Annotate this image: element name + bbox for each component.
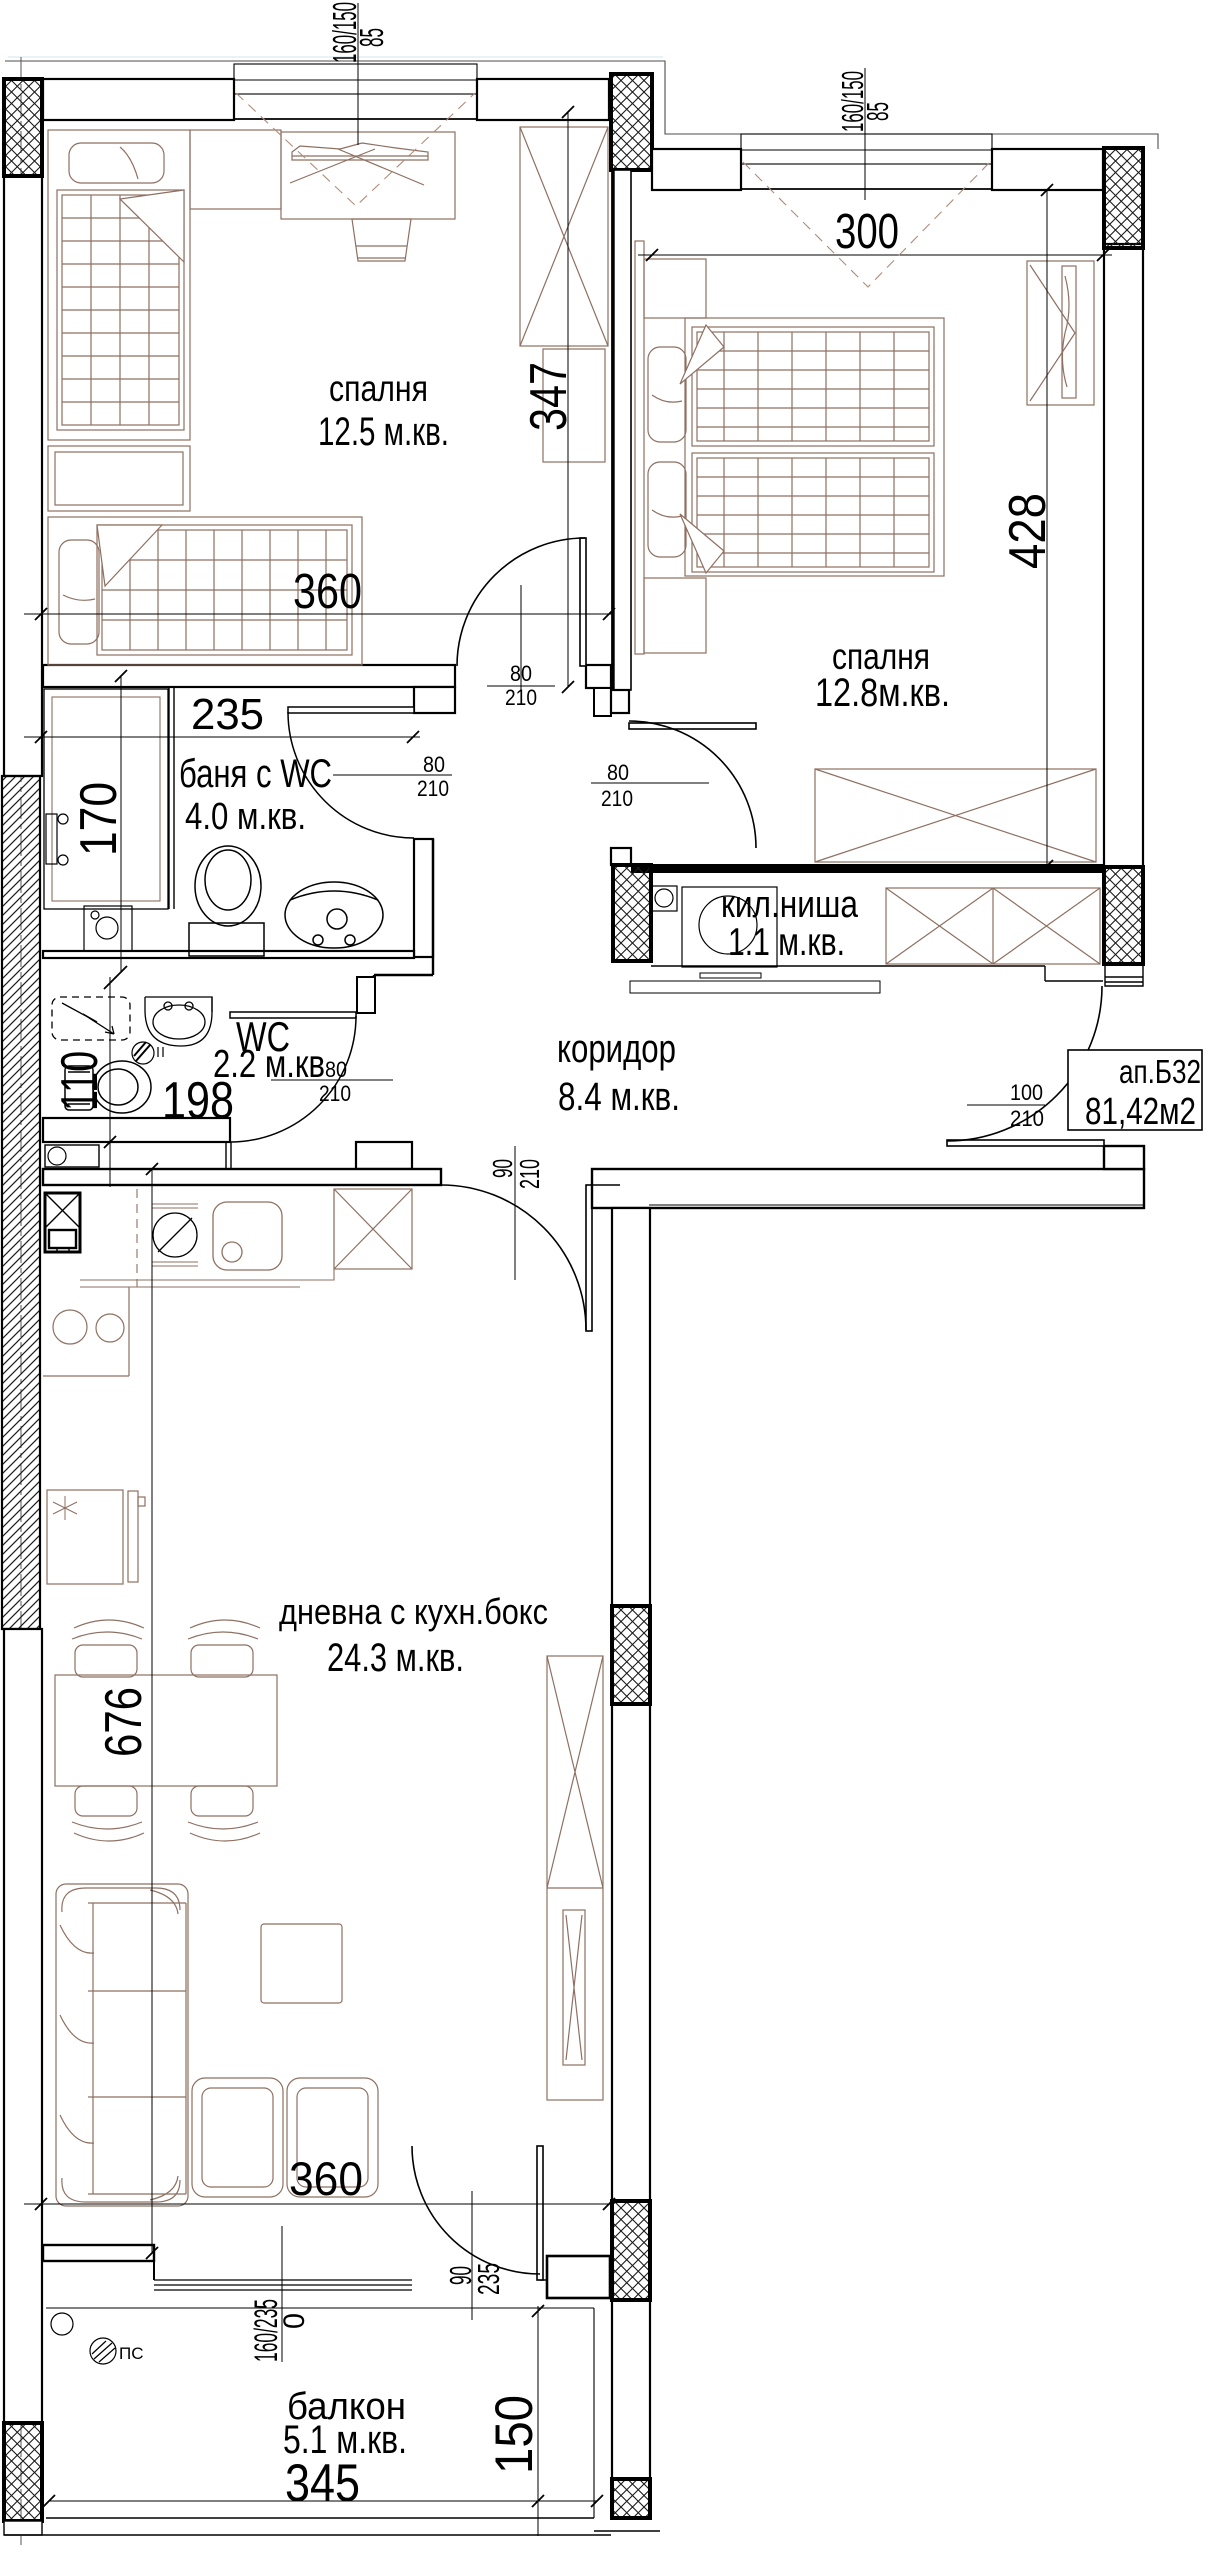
svg-text:0: 0 (278, 2313, 311, 2329)
svg-text:1.1 м.кв.: 1.1 м.кв. (728, 921, 845, 964)
svg-text:347: 347 (520, 362, 578, 431)
svg-text:баня с WC: баня с WC (179, 752, 332, 796)
svg-text:210: 210 (601, 786, 633, 811)
svg-text:235: 235 (191, 690, 264, 739)
svg-text:100: 100 (1010, 1080, 1043, 1105)
svg-text:81,42м2: 81,42м2 (1085, 1091, 1196, 1133)
svg-text:210: 210 (417, 776, 449, 801)
svg-text:210: 210 (514, 1159, 545, 1189)
svg-text:80: 80 (423, 752, 445, 777)
svg-text:дневна с кухн.бокс: дневна с кухн.бокс (279, 1591, 548, 1632)
svg-text:спалня: спалня (329, 368, 428, 409)
svg-text:160/150: 160/150 (835, 71, 870, 132)
svg-text:360: 360 (289, 2152, 363, 2205)
svg-text:110: 110 (51, 1051, 109, 1111)
svg-text:80: 80 (607, 760, 629, 785)
svg-text:12.5 м.кв.: 12.5 м.кв. (318, 410, 449, 454)
svg-text:80: 80 (325, 1057, 347, 1082)
svg-text:ап.Б32: ап.Б32 (1119, 1053, 1201, 1090)
svg-text:8.4 м.кв.: 8.4 м.кв. (558, 1075, 680, 1119)
svg-text:ПС: ПС (119, 2344, 144, 2363)
svg-text:12.8м.кв.: 12.8м.кв. (815, 671, 950, 715)
svg-text:300: 300 (835, 205, 899, 259)
svg-text:210: 210 (505, 685, 537, 710)
svg-text:210: 210 (319, 1081, 351, 1106)
svg-text:160/235: 160/235 (248, 2299, 284, 2362)
svg-text:428: 428 (999, 493, 1057, 569)
svg-text:коридор: коридор (557, 1027, 676, 1071)
svg-text:360: 360 (293, 565, 362, 619)
svg-text:кил.ниша: кил.ниша (721, 884, 859, 926)
svg-text:85: 85 (353, 28, 390, 47)
svg-text:4.0 м.кв.: 4.0 м.кв. (185, 796, 306, 838)
svg-text:235: 235 (471, 2263, 506, 2295)
svg-text:210: 210 (1010, 1106, 1044, 1131)
svg-text:80: 80 (510, 661, 532, 686)
svg-text:24.3 м.кв.: 24.3 м.кв. (327, 1636, 464, 1680)
svg-text:676: 676 (95, 1687, 153, 1757)
svg-text:85: 85 (860, 102, 895, 121)
svg-text:150: 150 (485, 2395, 544, 2474)
svg-text:345: 345 (285, 2454, 360, 2513)
svg-text:198: 198 (162, 1072, 234, 1130)
svg-text:170: 170 (70, 782, 128, 856)
